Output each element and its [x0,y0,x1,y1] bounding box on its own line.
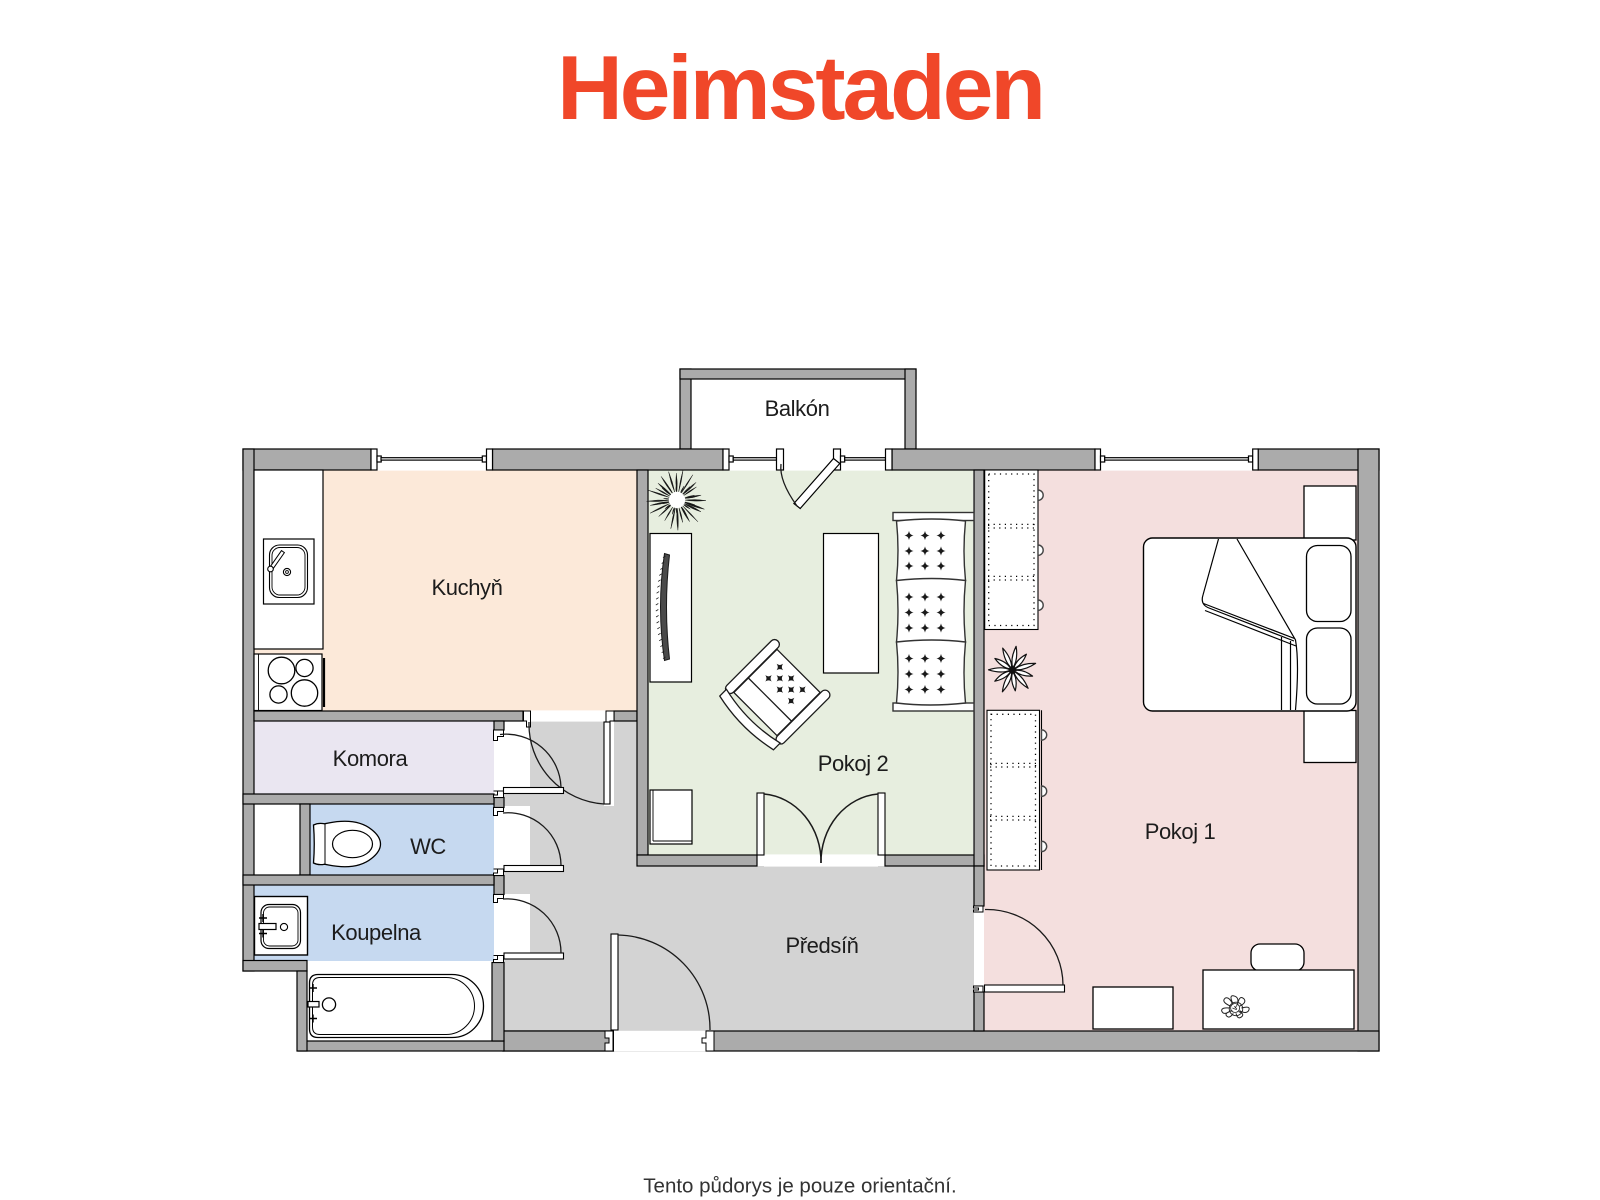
svg-text:Heimstaden: Heimstaden [557,38,1043,139]
svg-text:Koupelna: Koupelna [331,920,422,945]
svg-text:Balkón: Balkón [765,396,830,421]
svg-text:Předsíň: Předsíň [785,933,858,958]
svg-text:Tento půdorys je pouze orienta: Tento půdorys je pouze orientační. [643,1175,956,1198]
svg-text:Komora: Komora [333,746,409,771]
svg-text:WC: WC [410,834,446,859]
svg-text:Pokoj 1: Pokoj 1 [1145,819,1216,844]
svg-text:Pokoj 2: Pokoj 2 [818,751,889,776]
svg-text:Kuchyň: Kuchyň [432,575,503,600]
